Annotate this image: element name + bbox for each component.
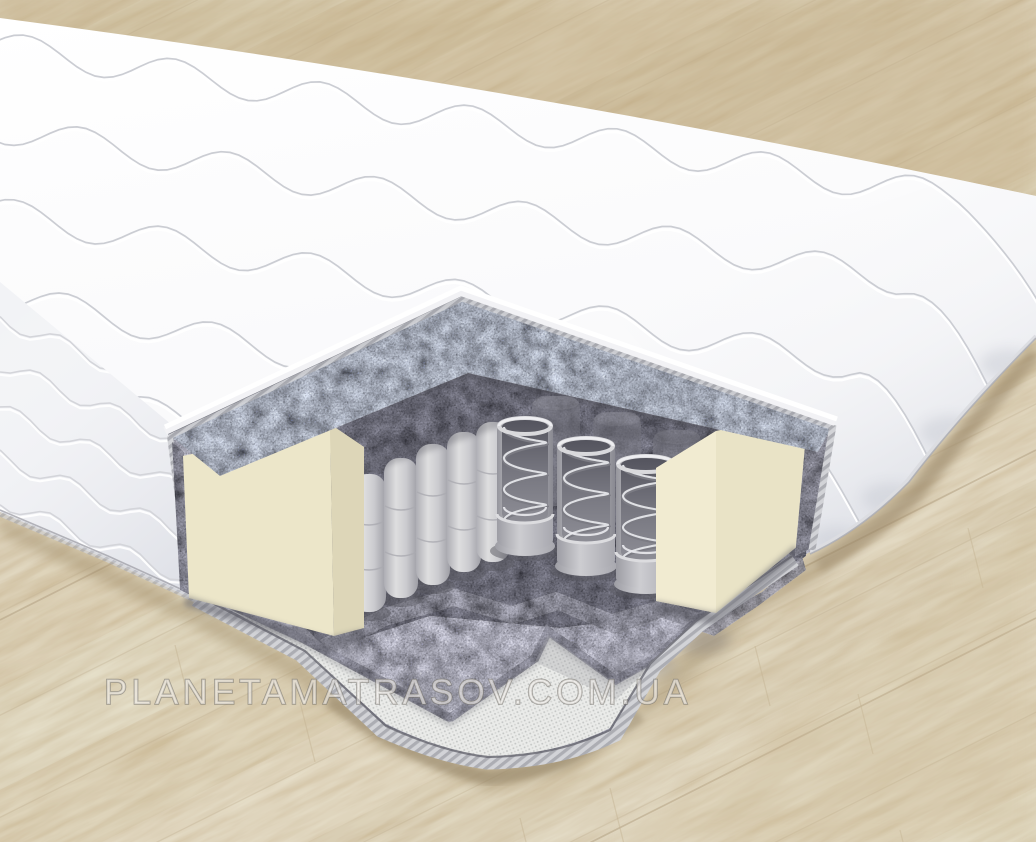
- svg-text:PLANETAMATRASOV.COM.UA: PLANETAMATRASOV.COM.UA: [104, 673, 691, 712]
